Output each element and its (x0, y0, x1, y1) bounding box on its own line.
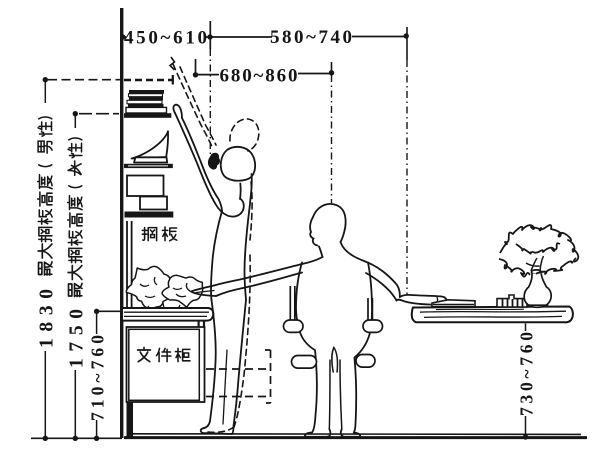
svg-text:680~860: 680~860 (220, 66, 298, 87)
svg-text:450~610: 450~610 (124, 28, 207, 49)
svg-text:1750: 1750 (66, 309, 87, 368)
svg-text:710~760: 710~760 (87, 335, 107, 421)
svg-text:1830: 1830 (36, 289, 57, 348)
svg-text:580~740: 580~740 (270, 27, 352, 48)
svg-text:730~760: 730~760 (516, 332, 536, 416)
